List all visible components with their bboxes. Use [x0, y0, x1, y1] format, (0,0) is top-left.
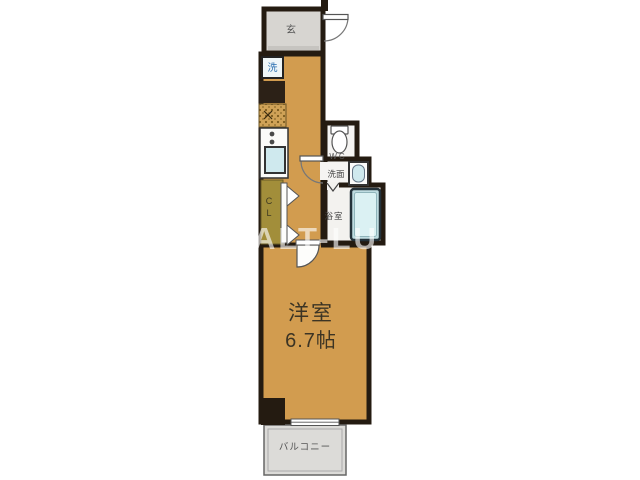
washer-label: 洗	[268, 62, 278, 74]
balcony-label: バルコニー	[279, 442, 331, 453]
entrance-step	[268, 46, 319, 50]
faucet-knob-icon	[270, 140, 275, 145]
washbasin-bowl-icon	[353, 165, 365, 182]
faucet-knob-icon	[270, 132, 275, 137]
wall-pillar	[261, 398, 285, 425]
wc-label: WC	[329, 152, 346, 161]
entrance-label: 玄	[286, 23, 296, 36]
bath-label: 浴室	[324, 211, 343, 221]
watermark-text: ALT-LU	[253, 221, 379, 256]
front-door-arc	[324, 17, 348, 41]
closet-label-l: L	[266, 208, 271, 218]
main-room-name: 洋室	[288, 302, 334, 325]
closet-label-c: C	[266, 196, 273, 206]
washroom-door-leaf	[300, 156, 323, 161]
floorplan-svg: 洗 C L WC 洗面 浴室 玄 洋室 6.7帖 バルコニー ALT-LU	[0, 0, 640, 480]
washroom-label: 洗面	[327, 169, 345, 179]
front-door-leaf	[323, 15, 348, 20]
floorplan-canvas: 洗 C L WC 洗面 浴室 玄 洋室 6.7帖 バルコニー ALT-LU	[0, 0, 640, 480]
fridge-space	[259, 81, 285, 103]
toilet-bowl-icon	[332, 131, 347, 153]
main-room-size: 6.7帖	[285, 329, 337, 352]
stove-area	[259, 104, 286, 127]
kitchen-sink	[265, 147, 285, 173]
